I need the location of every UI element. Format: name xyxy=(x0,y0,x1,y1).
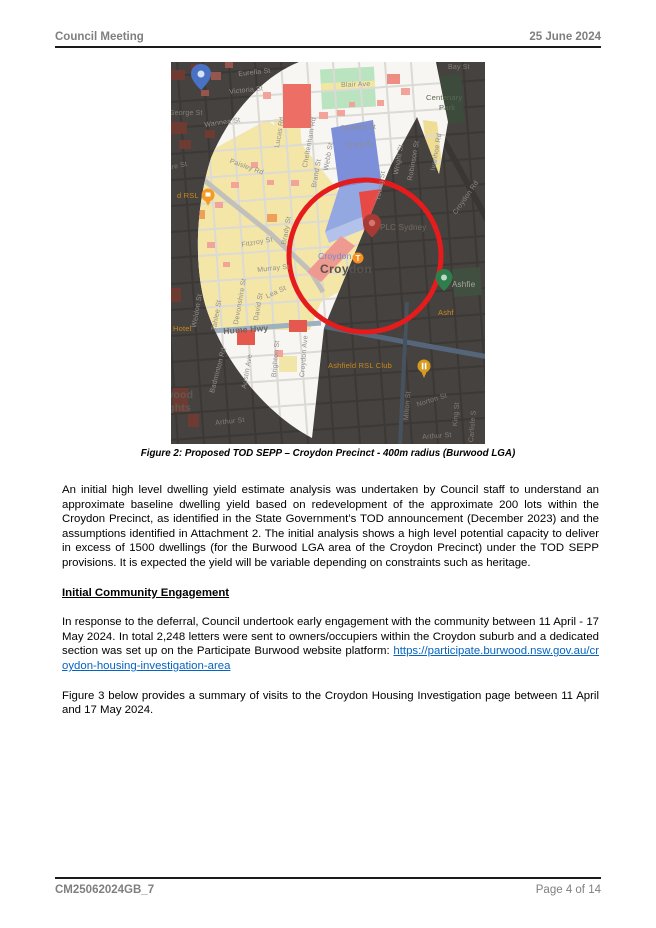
map-label: Norton St xyxy=(416,392,448,408)
footer-doc-id: CM25062024GB_7 xyxy=(55,884,154,896)
page-header: Council Meeting 25 June 2024 xyxy=(55,31,601,43)
page-footer: CM25062024GB_7 Page 4 of 14 xyxy=(55,884,601,896)
map-label: Young St xyxy=(375,171,387,202)
map-label: PLC Sydney xyxy=(380,224,426,232)
map-label: Orchard St xyxy=(340,124,376,132)
map-label: Brighton St xyxy=(271,340,281,377)
map-label: King St xyxy=(452,402,461,427)
map-label: Brand St xyxy=(311,159,323,189)
map-label: wood xyxy=(171,390,193,401)
paragraph-engagement: In response to the deferral, Council und… xyxy=(62,615,599,673)
map-label: Robinson St xyxy=(407,140,421,181)
map-label: Croydon xyxy=(318,252,352,261)
paragraph-dwelling-yield: An initial high level dwelling yield est… xyxy=(62,483,599,571)
map-label: Austin Ave xyxy=(241,354,254,390)
map-label: Lucas Rd xyxy=(274,116,286,148)
document-page: Council Meeting 25 June 2024 xyxy=(0,0,656,928)
map-label: Centenary xyxy=(426,94,462,102)
map-label: Croydon Rd xyxy=(452,180,480,216)
map-label: d RSL xyxy=(177,192,199,200)
map-label: Ashfie xyxy=(452,281,475,289)
header-date: 25 June 2024 xyxy=(529,31,601,43)
map-label: Ivanhoe Rd xyxy=(430,133,443,171)
map-label: Ashf xyxy=(438,309,454,317)
map-label: Murray St xyxy=(257,264,290,274)
map-label: Tahlee St xyxy=(211,299,223,331)
map-label: ights xyxy=(171,403,191,414)
map-label: Lea St xyxy=(265,285,287,300)
map-label: Devonshire St xyxy=(233,278,248,325)
map-label: Paisley Rd xyxy=(229,158,265,177)
map-label: hore St xyxy=(171,161,188,173)
header-rule xyxy=(55,46,601,48)
footer-page-number: Page 4 of 14 xyxy=(536,884,601,896)
map-label: Hotel xyxy=(173,325,192,333)
map-label: Webb St xyxy=(323,142,335,171)
map-label: Milton St xyxy=(403,391,413,421)
footer-rule xyxy=(55,877,601,879)
header-title: Council Meeting xyxy=(55,31,144,43)
figure-map-croydon-precinct: T Bay StEurella StVictoria StBlai xyxy=(171,62,485,444)
map-label: Ashfield RSL Club xyxy=(328,362,392,370)
map-label: George St xyxy=(171,110,203,117)
map-label: Croydon xyxy=(320,263,372,275)
map-label: Eurella St xyxy=(238,68,271,78)
map-label: Irrara St xyxy=(346,141,373,149)
map-label: Fitzroy St xyxy=(241,237,273,249)
map-label: Weldon St xyxy=(191,294,204,329)
map-label: Arthur St xyxy=(215,417,245,427)
map-label: David St xyxy=(253,292,265,321)
map-label: Bay St xyxy=(448,64,470,71)
map-label: Croydon Ave xyxy=(299,335,310,378)
map-label: Wannea St xyxy=(204,117,241,129)
map-label: Blair Ave xyxy=(341,81,371,89)
figure-caption: Figure 2: Proposed TOD SEPP – Croydon Pr… xyxy=(0,448,656,459)
map-label: Park xyxy=(439,104,455,112)
map-label: Badminton Rd xyxy=(209,347,228,394)
map-label: Hume Hwy xyxy=(223,324,269,336)
section-heading: Initial Community Engagement xyxy=(62,586,599,601)
body-text: An initial high level dwelling yield est… xyxy=(62,483,599,733)
map-label: Brady St xyxy=(281,216,293,245)
map-label: Carlisle S xyxy=(468,410,478,442)
map-label: Victoria St xyxy=(229,85,264,96)
map-label: Arthur St xyxy=(422,432,452,441)
paragraph-figure3: Figure 3 below provides a summary of vis… xyxy=(62,689,599,718)
map-label: Wright St xyxy=(393,144,405,175)
map-labels: Bay StEurella StVictoria StBlair AveCent… xyxy=(171,62,485,444)
